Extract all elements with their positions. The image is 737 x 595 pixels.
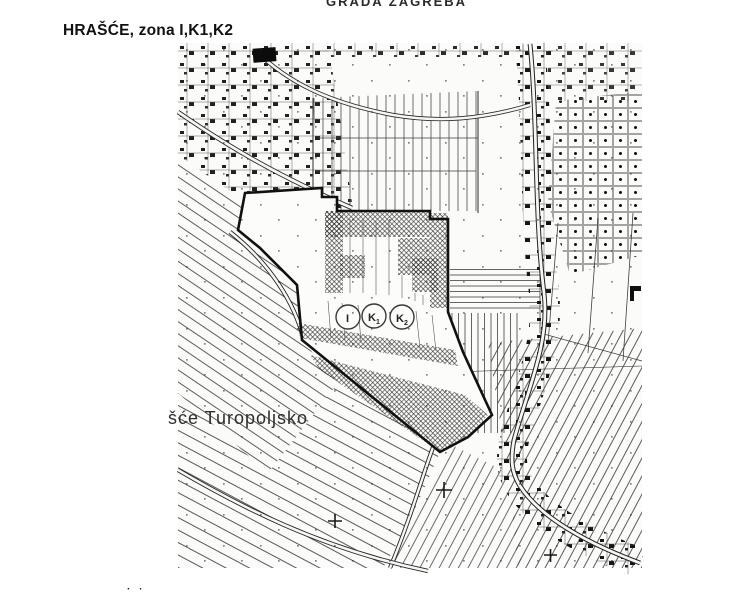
cropped-next-heading-artifact: · · [127, 584, 145, 595]
scatter-ticks [178, 43, 642, 568]
map-svg: I K1 K2 šće Turopoljsko [178, 43, 642, 568]
document-page: { "header": { "org_line": "GRADA ZAGREBA… [0, 0, 737, 595]
header-org-line: GRADA ZAGREBA [326, 0, 467, 9]
place-label: šće Turopoljsko [168, 408, 308, 428]
page-title: HRAŠĆE, zona I,K1,K2 [63, 22, 233, 40]
cadastral-map-figure: I K1 K2 šće Turopoljsko [178, 43, 642, 568]
